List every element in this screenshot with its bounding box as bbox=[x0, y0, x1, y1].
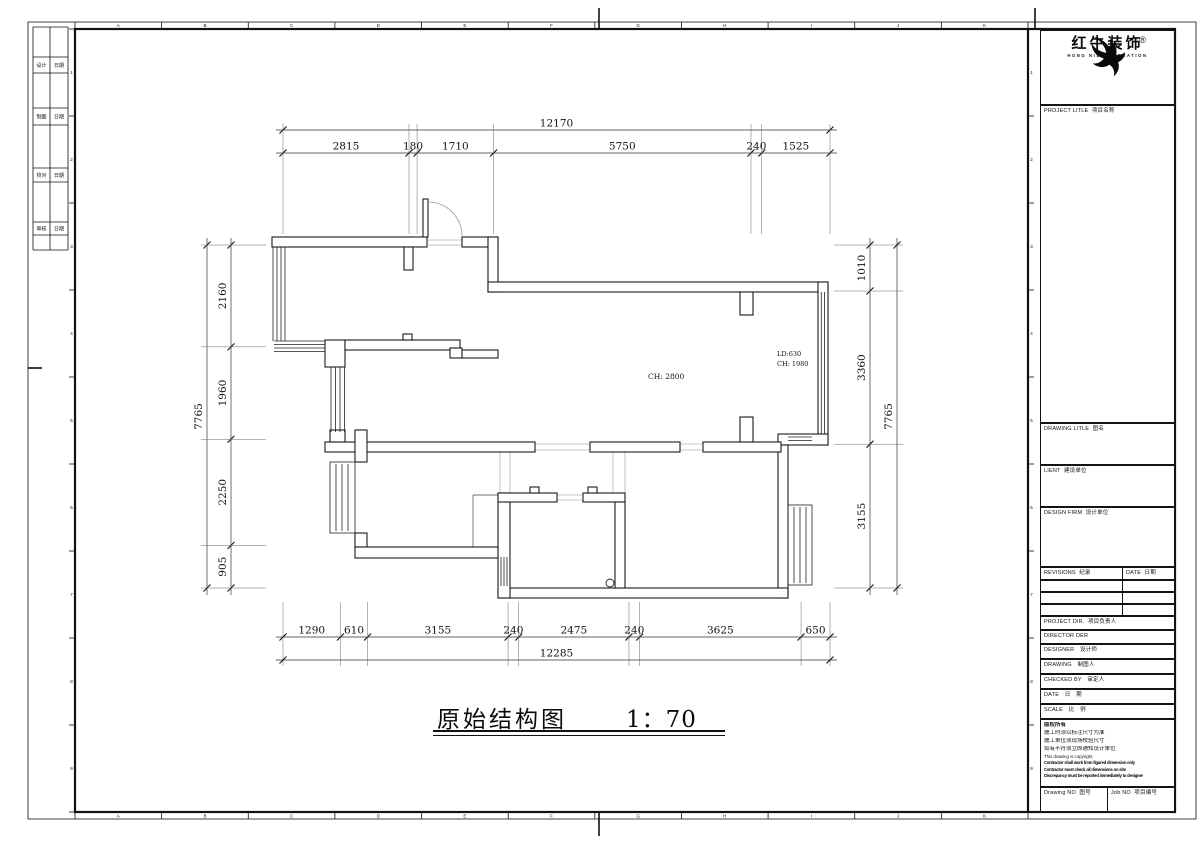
cell-copyright: 版权所有 施工时须以标注尺寸为准 施工单位须现场校验尺寸 如有不符须立即通知设计… bbox=[1040, 719, 1175, 787]
label-design-firm: DESIGN FIRM 设计单位 bbox=[1041, 508, 1174, 519]
ruler-number: 5 bbox=[70, 418, 73, 423]
door-swing-arc bbox=[428, 202, 462, 236]
label-checked-by: CHECKED BY 审定人 bbox=[1041, 675, 1174, 686]
dim-label: 2250 bbox=[217, 479, 229, 506]
ruler-number: 2 bbox=[70, 157, 73, 162]
dim-label: 3625 bbox=[707, 625, 734, 637]
label-project-dir: PROJECT DIR. 项目负责人 bbox=[1041, 617, 1174, 628]
cell-revision-row bbox=[1040, 604, 1175, 616]
copyright-line: 版权所有 bbox=[1044, 722, 1171, 730]
cell-designer: DESIGNER 设计师 bbox=[1040, 644, 1175, 659]
cell-revision-row bbox=[1040, 592, 1175, 604]
signoff-label: 制图 bbox=[36, 114, 46, 121]
ruler-number: 6 bbox=[70, 505, 73, 510]
cell-project-title: PROJECT LITLE 项目名称 bbox=[1040, 105, 1175, 423]
dim-label: 905 bbox=[217, 557, 229, 577]
ruler-letter: H bbox=[723, 814, 726, 819]
ruler-letter: C bbox=[290, 814, 294, 819]
ruler-letter: K bbox=[983, 814, 986, 819]
dim-label: 1525 bbox=[783, 141, 810, 153]
ruler-letter: A bbox=[117, 23, 120, 28]
copyright-line: 如有不符须立即通知设计单位 bbox=[1044, 746, 1171, 754]
dimension-layer: 1217028151801710575024015251290610315524… bbox=[193, 118, 903, 667]
ruler-number: 3 bbox=[70, 244, 73, 249]
ruler-number: 6 bbox=[1030, 505, 1033, 510]
sheet-svg: 设计日期制图日期校对日期审核日期 AABBCCDDEEFFGGHHIIJJKK1… bbox=[0, 0, 1200, 844]
floor-plan: CH: 2800 LD:630 CH: 1980 bbox=[272, 199, 828, 598]
cell-numbers: Drawing NO 图号 Job NO 项目编号 bbox=[1040, 787, 1175, 812]
cell-drawing-by: DRAWING 制图人 bbox=[1040, 659, 1175, 674]
dim-label: 1710 bbox=[442, 141, 469, 153]
ruler-number: 7 bbox=[70, 592, 73, 597]
dim-row-left_segments: 216019602250905 bbox=[201, 238, 266, 595]
dim-label: 240 bbox=[503, 625, 523, 637]
ruler-letter: B bbox=[203, 23, 206, 28]
cell-scale: SCALE 比 例 bbox=[1040, 704, 1175, 719]
label-director: DIRECTOR DER bbox=[1041, 631, 1174, 642]
dim-label: 3155 bbox=[856, 503, 868, 530]
ruler-letter: H bbox=[723, 23, 726, 28]
dim-row-top_segments: 2815180171057502401525 bbox=[276, 124, 837, 234]
ruler-number: 8 bbox=[70, 679, 73, 684]
page-title: 原始结构图 bbox=[437, 700, 567, 734]
dim-label: 650 bbox=[806, 625, 826, 637]
label-date: DATE 日 期 bbox=[1041, 690, 1174, 701]
cell-director: DIRECTOR DER bbox=[1040, 630, 1175, 644]
walls bbox=[272, 237, 828, 598]
ruler-letter: F bbox=[550, 814, 553, 819]
ruler-letter: I bbox=[811, 23, 812, 28]
ruler-number: 9 bbox=[1030, 766, 1033, 771]
bull-logo bbox=[1041, 31, 1176, 77]
signoff-grid bbox=[33, 27, 68, 250]
signoff-label: 校对 bbox=[36, 172, 46, 179]
cell-project-dir: PROJECT DIR. 项目负责人 bbox=[1040, 616, 1175, 630]
entry-door bbox=[423, 199, 462, 237]
ruler-letter: A bbox=[117, 814, 120, 819]
label-scale: SCALE 比 例 bbox=[1041, 705, 1174, 716]
cell-revisions-header: REVISIONS 纪录 DATE 日期 bbox=[1040, 567, 1175, 580]
cell-revision-row bbox=[1040, 580, 1175, 592]
label-drawing-title: DRAWING LITLE 图名 bbox=[1041, 424, 1174, 435]
dim-label: 240 bbox=[746, 141, 766, 153]
ruler-letter: D bbox=[377, 23, 381, 28]
cell-client: LIENT 建设单位 bbox=[1040, 465, 1175, 507]
ruler-number: 1 bbox=[70, 70, 73, 75]
dim-label: 180 bbox=[403, 141, 423, 153]
cell-design-firm: DESIGN FIRM 设计单位 bbox=[1040, 507, 1175, 567]
drawing-sheet: 设计日期制图日期校对日期审核日期 AABBCCDDEEFFGGHHIIJJKK1… bbox=[0, 0, 1200, 844]
page-scale: 1：70 bbox=[626, 700, 697, 734]
ceiling-height-label: CH: 2800 bbox=[648, 372, 685, 381]
dim-label: 3155 bbox=[424, 625, 451, 637]
signoff-label: 日期 bbox=[54, 173, 64, 179]
copyright-line: 施工单位须现场校验尺寸 bbox=[1044, 738, 1171, 746]
dim-label: 1010 bbox=[856, 255, 868, 282]
registered-mark: ® bbox=[1139, 35, 1146, 45]
dim-label: 1290 bbox=[298, 625, 325, 637]
label-project-title: PROJECT LITLE 项目名称 bbox=[1041, 106, 1174, 117]
dim-label: 610 bbox=[344, 625, 364, 637]
ruler-letter: C bbox=[290, 23, 294, 28]
dim-label: 5750 bbox=[609, 141, 636, 153]
title-underline bbox=[433, 730, 725, 732]
label-rev-date: DATE 日期 bbox=[1123, 568, 1174, 579]
dim-row-top_overall: 12170 bbox=[276, 118, 837, 134]
ruler-number: 9 bbox=[70, 766, 73, 771]
door-height-label: CH: 1980 bbox=[777, 360, 808, 368]
dim-row-left_overall: 7765 bbox=[193, 238, 211, 595]
copyright-line: This drawing is copyright bbox=[1044, 754, 1171, 761]
ruler-number: 7 bbox=[1030, 592, 1033, 597]
dim-label: 240 bbox=[624, 625, 644, 637]
dim-label: 3360 bbox=[856, 354, 868, 381]
label-client: LIENT 建设单位 bbox=[1041, 466, 1174, 477]
ruler-letter: K bbox=[983, 23, 986, 28]
copyright-line: Discrepancy must be reported immediately… bbox=[1044, 773, 1171, 780]
copyright-line: 施工时须以标注尺寸为准 bbox=[1044, 730, 1171, 738]
label-job-no: Job NO 项目编号 bbox=[1108, 788, 1174, 811]
ruler-letter: J bbox=[897, 814, 899, 819]
ruler-letter: E bbox=[463, 23, 466, 28]
dim-row-right_overall: 7765 bbox=[883, 238, 901, 595]
ruler-letter: I bbox=[811, 814, 812, 819]
floor-drain bbox=[606, 579, 614, 587]
label-revisions: REVISIONS 纪录 bbox=[1041, 568, 1123, 579]
label-drawing-no: Drawing NO 图号 bbox=[1041, 788, 1108, 811]
cell-checked-by: CHECKED BY 审定人 bbox=[1040, 674, 1175, 689]
dim-label: 7765 bbox=[883, 403, 895, 430]
signoff-label: 审核 bbox=[36, 226, 46, 233]
ruler-letter: G bbox=[636, 814, 640, 819]
dim-label: 12170 bbox=[540, 118, 573, 130]
ruler-letter: J bbox=[897, 23, 899, 28]
cell-drawing-title: DRAWING LITLE 图名 bbox=[1040, 423, 1175, 465]
dim-label: 12285 bbox=[540, 648, 573, 660]
dim-label: 2160 bbox=[217, 283, 229, 310]
dim-label: 2815 bbox=[333, 141, 360, 153]
signoff-label: 日期 bbox=[54, 115, 64, 121]
ruler-number: 3 bbox=[1030, 244, 1033, 249]
ruler-number: 1 bbox=[1030, 70, 1033, 75]
bull-glyph bbox=[1091, 37, 1124, 77]
dim-label: 2475 bbox=[560, 625, 587, 637]
dim-label: 7765 bbox=[193, 403, 205, 430]
signoff-label: 日期 bbox=[54, 227, 64, 233]
ruler-number: 5 bbox=[1030, 418, 1033, 423]
ruler-number: 8 bbox=[1030, 679, 1033, 684]
ruler-number: 4 bbox=[1030, 331, 1033, 336]
ruler-letter: F bbox=[550, 23, 553, 28]
ruler-letter: D bbox=[377, 814, 381, 819]
dim-label: 1960 bbox=[217, 380, 229, 407]
signoff-label: 设计 bbox=[36, 62, 46, 69]
dim-row-bottom_overall: 12285 bbox=[276, 648, 837, 664]
lintel-label: LD:630 bbox=[777, 350, 801, 358]
ruler-number: 2 bbox=[1030, 157, 1033, 162]
ruler-letter: E bbox=[463, 814, 466, 819]
title-underline-2 bbox=[433, 735, 725, 736]
ruler-letter: G bbox=[636, 23, 640, 28]
label-designer: DESIGNER 设计师 bbox=[1041, 645, 1174, 656]
ruler-letter: B bbox=[203, 814, 206, 819]
logo-box: ® 红牛装饰 HONG NIU DECORATION bbox=[1040, 30, 1175, 105]
cell-date: DATE 日 期 bbox=[1040, 689, 1175, 704]
signoff-label: 日期 bbox=[54, 63, 64, 69]
ruler-number: 4 bbox=[70, 331, 73, 336]
label-drawing-by: DRAWING 制图人 bbox=[1041, 660, 1174, 671]
